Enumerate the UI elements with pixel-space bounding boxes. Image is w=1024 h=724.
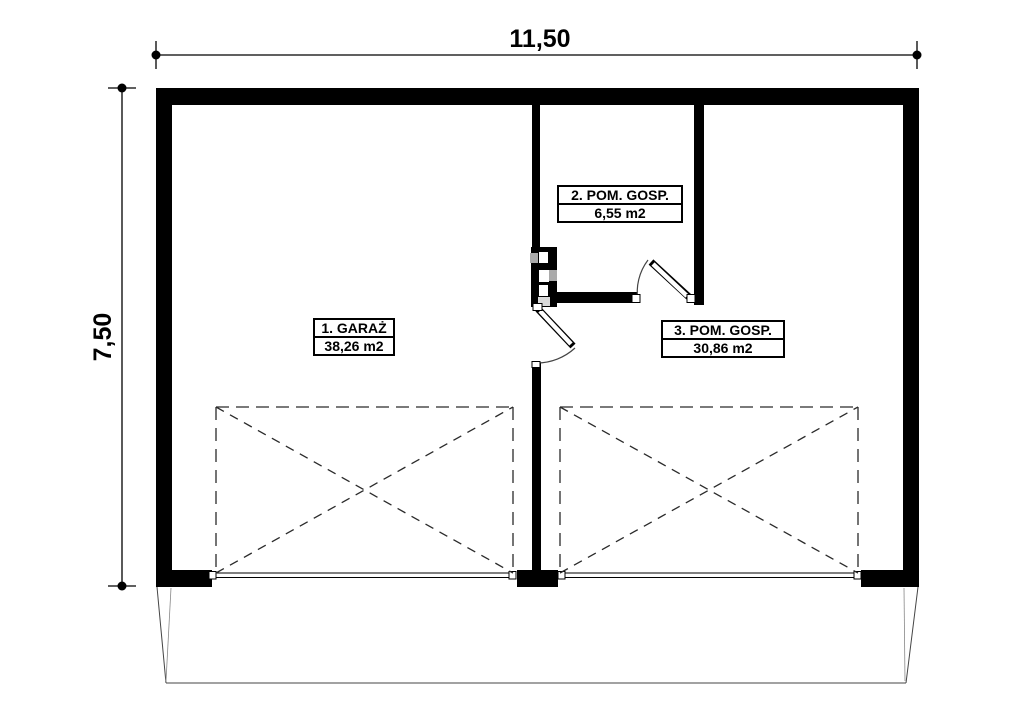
door-room2 — [632, 260, 695, 303]
wall-divider-upper — [532, 105, 540, 247]
flue-gray — [530, 253, 538, 263]
dimension-marker — [118, 84, 127, 93]
door-garage — [532, 304, 575, 368]
driveway-apron — [157, 587, 918, 683]
sill-end-marker — [209, 572, 216, 580]
garage-door-sill-right — [558, 573, 861, 578]
chimney-block — [530, 247, 557, 307]
wall-left — [156, 88, 172, 587]
dimension-height-label: 7,50 — [91, 237, 117, 437]
door-swing-arc — [537, 348, 575, 363]
room-label-pom-gosp-2: 2. POM. GOSP. 6,55 m2 — [557, 185, 683, 223]
dimension-marker — [913, 51, 922, 60]
room-label-pom-gosp-3: 3. POM. GOSP. 30,86 m2 — [661, 320, 785, 358]
flue-gray — [549, 270, 557, 281]
flue-white — [539, 285, 548, 296]
door-stop-marker — [632, 295, 640, 303]
floor-plan-canvas: 11,50 7,50 1. GARAŻ 38,26 m2 2. POM. GOS… — [0, 0, 1024, 724]
room-name: 3. POM. GOSP. — [663, 322, 783, 340]
flue-white — [539, 252, 548, 263]
wall-center-pier — [517, 570, 558, 587]
room-name: 1. GARAŻ — [315, 320, 393, 338]
floor-plan-drawing — [0, 0, 1024, 724]
garage-door-sill-left — [212, 573, 513, 578]
door-stop-marker — [532, 362, 540, 368]
room-name: 2. POM. GOSP. — [559, 187, 681, 205]
door-hinge-marker — [533, 304, 542, 311]
garage-door-right-dashed-box — [560, 407, 858, 573]
room-area: 38,26 m2 — [315, 338, 393, 354]
wall-bottom-right-stub — [861, 570, 919, 587]
door-hinge-marker — [687, 295, 695, 303]
garage-door-left-dashed-box — [216, 407, 513, 573]
wall-right — [903, 88, 919, 587]
flue-white — [539, 270, 549, 282]
dimension-marker — [152, 51, 161, 60]
wall-room2-room3 — [694, 105, 704, 305]
room-area: 30,86 m2 — [663, 340, 783, 356]
wall-top — [156, 88, 919, 105]
wall-bottom-left-stub — [156, 570, 212, 587]
wall-divider-lower — [532, 363, 541, 570]
dimension-width-label: 11,50 — [440, 27, 640, 52]
room-label-garage: 1. GARAŻ 38,26 m2 — [313, 318, 395, 356]
dimension-marker — [118, 582, 127, 591]
room-area: 6,55 m2 — [559, 205, 681, 221]
